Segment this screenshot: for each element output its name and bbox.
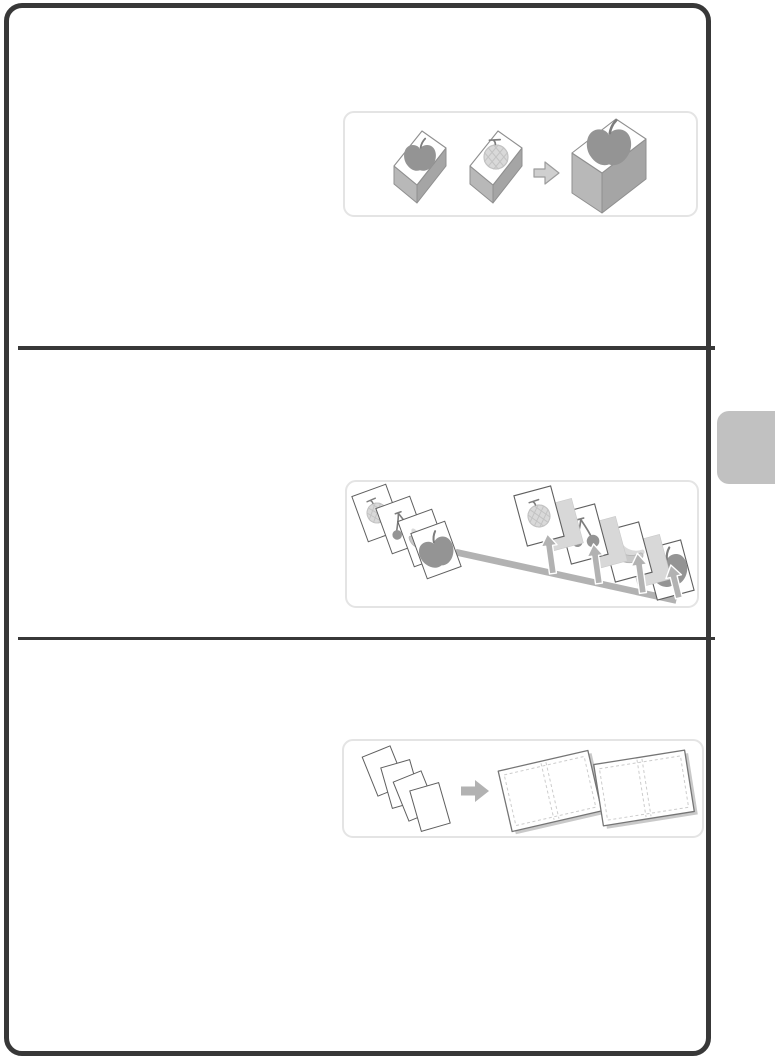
page-border-frame — [4, 3, 711, 1056]
separator-pages-illustration — [347, 482, 697, 606]
open-spread-icon — [498, 750, 605, 835]
manual-page — [0, 0, 775, 1062]
illustration-panel-combine-originals — [343, 111, 698, 217]
right-arrow-icon — [461, 780, 489, 802]
section-separator-pages — [18, 353, 715, 640]
section-combine-originals — [18, 16, 715, 349]
open-spread-icon — [594, 750, 698, 830]
combine-originals-illustration — [345, 113, 696, 215]
merge-arrow-icon — [534, 162, 559, 184]
chapter-index-tab — [717, 411, 775, 484]
melon-box-icon — [470, 131, 522, 203]
large-apple-box-icon — [572, 119, 646, 213]
illustration-panel-booklet-spreads — [342, 739, 704, 838]
loose-sheet-stack-icon — [362, 746, 450, 831]
section-booklet-spreads — [18, 643, 715, 1059]
section-divider — [18, 346, 715, 350]
melon-sheet-icon — [514, 486, 564, 546]
section-divider — [18, 637, 715, 640]
fruit-sheet-stack-icon — [352, 484, 461, 578]
booklet-spreads-illustration — [344, 741, 702, 836]
apple-box-icon — [394, 131, 446, 203]
illustration-panel-separator-pages — [345, 480, 699, 608]
